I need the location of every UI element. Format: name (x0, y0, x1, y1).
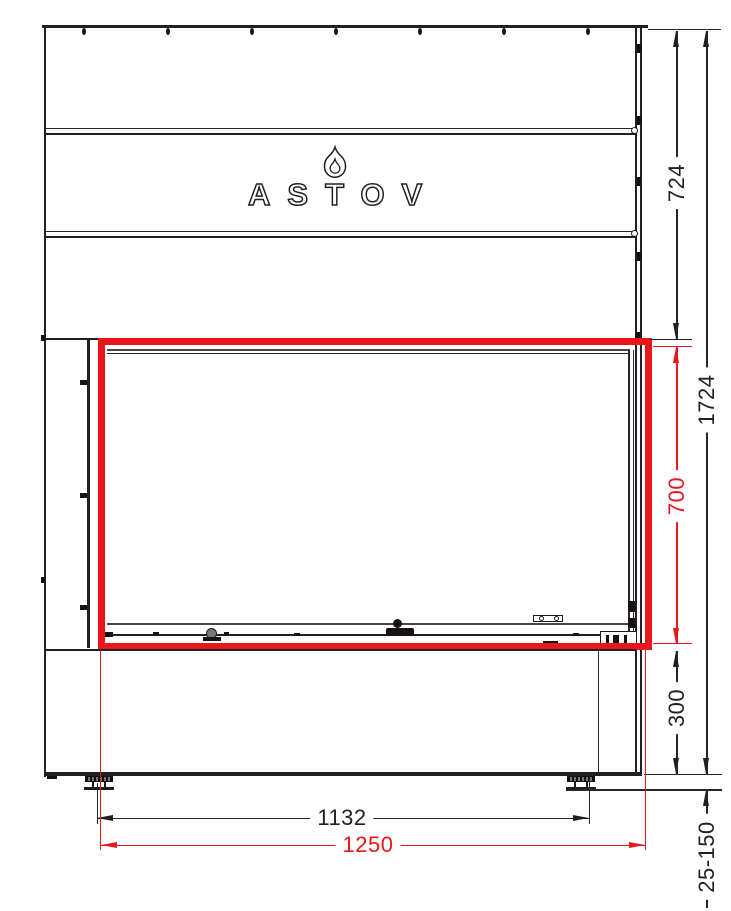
arrow-up-icon (703, 790, 709, 806)
base-inner-panel-line (598, 651, 599, 773)
dim-label-300: 300 (665, 682, 689, 734)
arrow-right-icon (573, 815, 589, 821)
arrow-down-icon (703, 758, 709, 774)
screw-icon (166, 28, 170, 35)
arrow-up-icon (673, 347, 679, 363)
arrow-up-icon (673, 651, 679, 667)
unit-left-edge (44, 25, 46, 777)
screw-icon (250, 28, 254, 35)
hinge-pin-icon (637, 44, 641, 53)
hinge-pin-icon (637, 177, 641, 186)
dim-label-1132: 1132 (310, 806, 373, 830)
ext-line-1250-left (100, 650, 101, 850)
arrow-down-icon (673, 323, 679, 339)
dim-label-700: 700 (665, 470, 689, 522)
unit-top-edge (42, 25, 648, 28)
screw-icon (82, 28, 86, 35)
screw-icon (80, 493, 87, 498)
glass-opening-highlight (98, 338, 652, 650)
arrow-left-icon (101, 842, 117, 848)
ext-line-glass-top (650, 339, 692, 340)
band-divider-2b (46, 236, 636, 238)
ext-line-base-bottom (644, 774, 722, 775)
hinge-pin-icon (637, 252, 641, 261)
pivot-screw-icon (631, 230, 638, 237)
dim-label-1250: 1250 (336, 833, 401, 857)
brand-logo-text: ASTOV (248, 177, 439, 212)
screw-icon (586, 28, 590, 35)
arrow-down-icon (673, 758, 679, 774)
band-divider-2a (46, 231, 636, 232)
brand-logo: ASTOV (228, 133, 468, 213)
screw-icon (334, 28, 338, 35)
edge-stud-icon (41, 577, 45, 583)
base-nub-icon (47, 776, 57, 779)
technical-drawing: ASTOV 7 (0, 0, 731, 911)
dim-label-1724: 1724 (695, 368, 719, 433)
arrow-right-icon (629, 842, 645, 848)
screw-icon (80, 605, 87, 610)
ext-line-top (648, 29, 721, 30)
hinge-pin-icon (637, 116, 641, 125)
left-strip-line (87, 340, 90, 648)
edge-stud-icon (41, 335, 45, 341)
left-foot-plate-icon (84, 787, 114, 790)
screw-icon (418, 28, 422, 35)
band-divider-1a (46, 128, 636, 129)
base-top-line (45, 649, 636, 651)
arrow-down-icon (673, 628, 679, 644)
dim-label-25-150: 25-150 (695, 814, 719, 900)
dim-label-724: 724 (665, 157, 689, 209)
pivot-screw-icon (631, 127, 638, 134)
screw-icon (502, 28, 506, 35)
unit-bottom-edge (44, 772, 642, 776)
screw-icon (80, 380, 87, 385)
arrow-up-icon (703, 31, 709, 47)
ext-line-1250-right (645, 650, 646, 850)
arrow-up-icon (673, 31, 679, 47)
